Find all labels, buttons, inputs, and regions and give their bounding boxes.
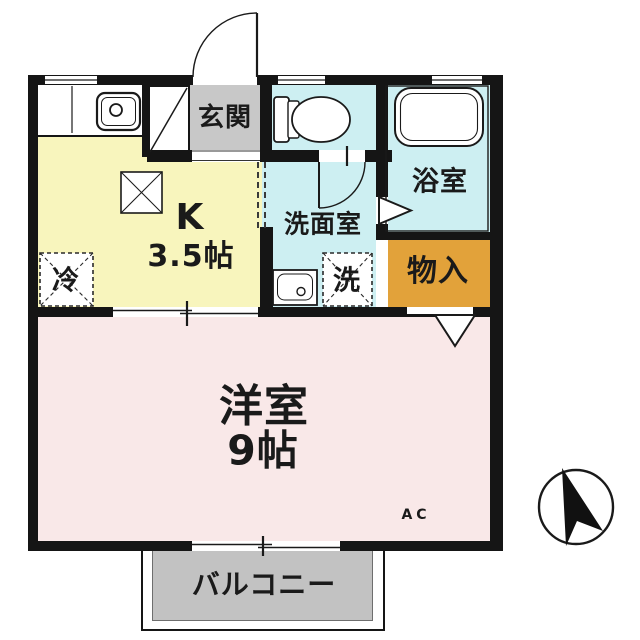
ac-label: AC [401,508,430,522]
toilet-icon [274,97,350,142]
kitchen-size-label: 3.5帖 [147,242,234,272]
balcony-label: バルコニー [192,571,336,599]
genkan-step-lines [192,151,260,161]
kitchen-sink-icon [72,86,140,133]
bath-door-icon [379,197,411,224]
genkan-label: 玄関 [198,105,252,131]
washroom-label: 洗面室 [284,212,362,237]
sliding-door-lines [113,311,258,314]
western-room-size-label: 9帖 [227,431,299,472]
bathroom-label: 浴室 [412,169,468,196]
refrigerator-label: 冷 [52,268,80,295]
washbasin-icon [273,270,317,305]
floorplan: 玄関 浴室 洗面室 物入 K 3.5帖 洋室 9帖 バルコニー 冷 洗 AC [0,0,640,640]
stove-icon [121,172,162,213]
closet-door-icon [435,315,475,346]
fixtures-layer [0,0,640,640]
sliding-window-lines [192,545,340,548]
shoe-cabinet-diagonal [150,88,187,152]
western-room-label: 洋室 [219,385,309,429]
washroom-door-arc-icon [319,162,365,208]
north-arrow-icon [539,468,613,546]
storage-label: 物入 [407,257,469,287]
kitchen-type-label: K [176,200,205,236]
washing-machine-label: 洗 [333,268,361,295]
entry-door-arc-icon [193,13,257,77]
